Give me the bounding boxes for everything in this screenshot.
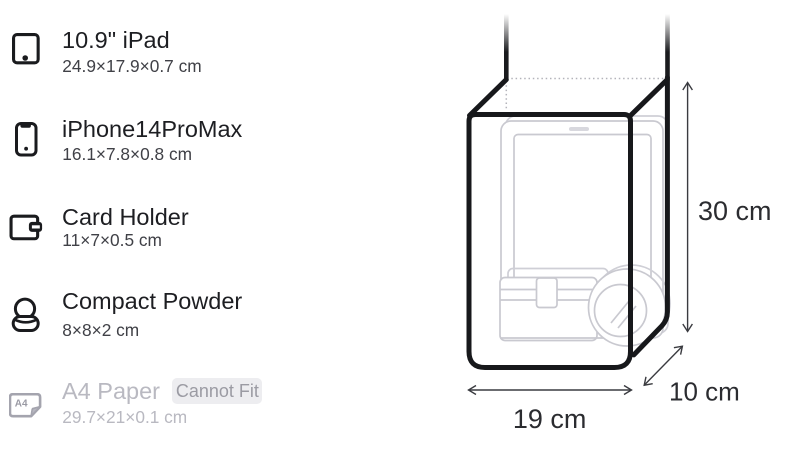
svg-text:19 cm: 19 cm <box>513 404 587 434</box>
svg-text:30 cm: 30 cm <box>698 196 772 226</box>
svg-text:10 cm: 10 cm <box>669 377 740 407</box>
svg-text:A4: A4 <box>15 398 28 409</box>
